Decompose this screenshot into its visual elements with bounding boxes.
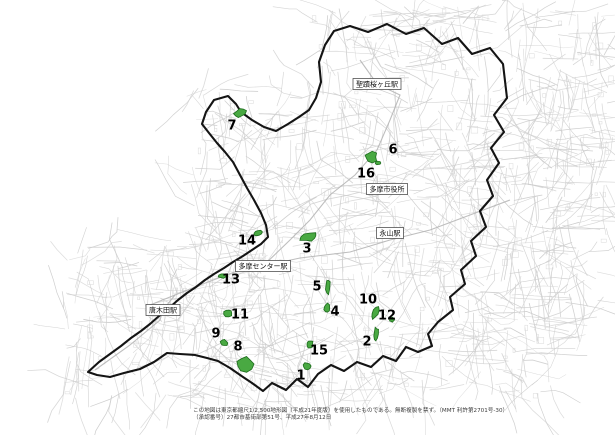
street-line bbox=[423, 371, 429, 396]
street-line bbox=[474, 95, 479, 122]
site-number-2: 2 bbox=[362, 335, 371, 350]
street-line bbox=[212, 115, 214, 130]
street-line bbox=[478, 46, 480, 71]
building-outline bbox=[338, 113, 343, 120]
street-line bbox=[604, 18, 615, 55]
street-line bbox=[234, 85, 281, 89]
street-line bbox=[105, 338, 106, 364]
street-line bbox=[446, 133, 451, 152]
street-line bbox=[335, 253, 363, 264]
street-line bbox=[410, 123, 439, 128]
street-line bbox=[483, 329, 484, 364]
building-outline bbox=[506, 254, 510, 259]
street-line bbox=[269, 75, 302, 97]
street-line bbox=[199, 68, 209, 98]
street-line bbox=[430, 229, 437, 277]
street-line bbox=[91, 395, 112, 435]
street-line bbox=[505, 2, 556, 31]
street-line bbox=[71, 352, 79, 395]
street-line bbox=[537, 393, 559, 435]
street-line bbox=[123, 344, 180, 394]
site-number-16: 16 bbox=[357, 167, 375, 182]
street-line bbox=[494, 286, 558, 295]
street-line bbox=[66, 345, 102, 356]
street-line bbox=[232, 175, 257, 176]
street-line bbox=[479, 315, 515, 325]
site-number-1: 1 bbox=[296, 369, 305, 384]
attribution-line-2: （承認番号）27都市基街部第51号、平成27年8月12日 bbox=[193, 415, 331, 422]
building-outline bbox=[313, 337, 317, 342]
street-line bbox=[402, 55, 432, 56]
street-line bbox=[544, 356, 549, 382]
street-line bbox=[78, 227, 87, 253]
site-number-5: 5 bbox=[312, 280, 321, 295]
street-line bbox=[357, 375, 383, 434]
street-line bbox=[192, 167, 216, 220]
street-line bbox=[445, 184, 446, 221]
street-line bbox=[376, 282, 390, 308]
building-outline bbox=[364, 328, 370, 331]
building-outline bbox=[441, 65, 445, 70]
street-line bbox=[34, 324, 66, 329]
street-line bbox=[196, 119, 218, 120]
street-line bbox=[466, 19, 496, 23]
street-line bbox=[336, 340, 362, 389]
street-line bbox=[430, 385, 465, 390]
street-line bbox=[416, 312, 421, 347]
street-network bbox=[27, 0, 615, 435]
place-label-text: 聖蹟桜ヶ丘駅 bbox=[356, 80, 398, 89]
site-number-4: 4 bbox=[330, 305, 339, 320]
street-line bbox=[518, 269, 524, 318]
place-label-text: 永山駅 bbox=[380, 229, 401, 238]
site-polygon-16 bbox=[375, 161, 380, 165]
site-number-15: 15 bbox=[310, 344, 328, 359]
street-line bbox=[242, 354, 270, 355]
street-line bbox=[76, 320, 93, 322]
street-line bbox=[568, 80, 580, 122]
street-line bbox=[88, 370, 90, 408]
street-line bbox=[483, 117, 543, 133]
building-outline bbox=[98, 357, 102, 360]
street-line bbox=[106, 292, 107, 332]
street-line bbox=[290, 92, 319, 98]
building-outline bbox=[448, 106, 453, 112]
street-line bbox=[600, 192, 615, 225]
street-line bbox=[389, 45, 398, 71]
street-line bbox=[321, 263, 373, 270]
street-line bbox=[487, 178, 533, 225]
building-outline bbox=[198, 148, 200, 154]
building-outline bbox=[601, 239, 606, 242]
building-outline bbox=[321, 257, 327, 264]
building-outline bbox=[420, 307, 424, 311]
street-line bbox=[352, 274, 360, 350]
site-polygon-8 bbox=[237, 357, 254, 373]
street-line bbox=[304, 391, 348, 395]
street-line bbox=[396, 257, 401, 285]
street-line bbox=[519, 24, 534, 88]
street-line bbox=[87, 247, 147, 250]
street-line bbox=[406, 130, 452, 131]
street-line bbox=[598, 155, 615, 161]
street-line bbox=[579, 135, 584, 176]
building-outline bbox=[595, 193, 598, 196]
street-line bbox=[440, 249, 481, 287]
street-line bbox=[414, 93, 417, 106]
street-line bbox=[226, 180, 278, 197]
street-line bbox=[550, 206, 592, 212]
building-outline bbox=[546, 265, 553, 269]
street-line bbox=[341, 103, 359, 162]
street-line bbox=[195, 157, 234, 170]
building-outline bbox=[355, 91, 358, 94]
street-line bbox=[506, 330, 508, 369]
street-line bbox=[90, 389, 128, 407]
street-line bbox=[561, 91, 565, 138]
street-line bbox=[249, 162, 271, 206]
street-line bbox=[346, 97, 369, 102]
street-line bbox=[153, 373, 180, 385]
street-line bbox=[180, 365, 199, 383]
street-line bbox=[488, 68, 501, 92]
street-line bbox=[514, 165, 517, 204]
street-line bbox=[220, 89, 258, 91]
street-line bbox=[383, 281, 406, 295]
street-line bbox=[375, 88, 408, 103]
street-line bbox=[111, 360, 120, 399]
building-outline bbox=[168, 252, 174, 256]
building-outline bbox=[278, 281, 280, 286]
street-line bbox=[430, 202, 432, 236]
site-number-10: 10 bbox=[359, 293, 377, 308]
building-outline bbox=[385, 348, 391, 355]
street-line bbox=[487, 231, 499, 280]
site-polygon-7 bbox=[234, 109, 247, 118]
street-line bbox=[115, 270, 147, 274]
building-outline bbox=[297, 144, 303, 150]
street-line bbox=[542, 225, 547, 252]
site-polygon-4 bbox=[324, 303, 330, 312]
street-line bbox=[323, 114, 369, 122]
street-line bbox=[75, 250, 83, 288]
street-line bbox=[534, 51, 560, 58]
street-line bbox=[303, 129, 354, 139]
street-line bbox=[608, 44, 615, 105]
street-line bbox=[434, 248, 455, 249]
street-line bbox=[329, 10, 372, 55]
street-line bbox=[523, 359, 526, 377]
street-line bbox=[440, 153, 460, 188]
street-line bbox=[390, 160, 434, 183]
street-line bbox=[526, 25, 562, 28]
street-line bbox=[439, 344, 442, 385]
site-number-7: 7 bbox=[227, 119, 236, 134]
street-line bbox=[463, 322, 490, 323]
street-line bbox=[179, 266, 197, 269]
street-line bbox=[445, 275, 447, 314]
site-number-12: 12 bbox=[378, 309, 396, 324]
street-line bbox=[397, 199, 430, 203]
street-line bbox=[307, 364, 318, 413]
street-line bbox=[514, 284, 516, 320]
street-line bbox=[354, 45, 396, 60]
building-outline bbox=[509, 164, 513, 169]
street-line bbox=[258, 295, 270, 344]
street-line bbox=[477, 0, 512, 16]
street-line bbox=[131, 281, 134, 337]
street-line bbox=[254, 226, 309, 236]
street-line bbox=[443, 239, 455, 265]
street-line bbox=[383, 248, 421, 256]
street-line bbox=[555, 4, 608, 12]
street-line bbox=[558, 107, 579, 110]
street-line bbox=[315, 176, 344, 178]
street-line bbox=[316, 92, 357, 115]
street-line bbox=[532, 250, 574, 252]
building-outline bbox=[529, 54, 534, 58]
street-line bbox=[259, 114, 292, 116]
street-line bbox=[601, 0, 615, 16]
street-line bbox=[451, 372, 481, 411]
map-page: 12345678910111213141516 聖蹟桜ヶ丘駅多摩市役所永山駅多摩… bbox=[0, 0, 615, 435]
street-line bbox=[347, 60, 352, 91]
street-line bbox=[327, 184, 373, 190]
street-line bbox=[503, 371, 527, 387]
street-line bbox=[489, 25, 523, 49]
street-line bbox=[339, 9, 347, 63]
street-line bbox=[579, 166, 597, 226]
street-line bbox=[303, 297, 310, 339]
street-line bbox=[573, 242, 598, 260]
street-line bbox=[405, 138, 433, 144]
street-line bbox=[261, 352, 296, 382]
building-outline bbox=[138, 297, 140, 300]
street-line bbox=[507, 0, 512, 58]
street-line bbox=[577, 324, 585, 351]
building-outline bbox=[427, 297, 430, 300]
street-line bbox=[219, 386, 220, 406]
street-line bbox=[498, 221, 517, 238]
street-line bbox=[181, 310, 212, 324]
street-line bbox=[521, 115, 539, 140]
street-line bbox=[359, 350, 368, 398]
street-line bbox=[546, 177, 549, 207]
street-line bbox=[273, 287, 310, 295]
site-number-9: 9 bbox=[211, 327, 220, 342]
street-line bbox=[597, 272, 615, 290]
street-line bbox=[584, 88, 595, 132]
street-line bbox=[566, 261, 587, 268]
street-line bbox=[581, 81, 584, 110]
street-line bbox=[88, 217, 118, 248]
building-outline bbox=[405, 383, 409, 387]
street-line bbox=[607, 97, 615, 103]
street-line bbox=[606, 228, 615, 275]
street-line bbox=[121, 353, 137, 385]
site-number-13: 13 bbox=[222, 273, 240, 288]
street-line bbox=[591, 221, 615, 222]
street-line bbox=[273, 7, 318, 23]
street-line bbox=[416, 100, 468, 102]
street-line bbox=[569, 294, 579, 342]
street-line bbox=[287, 363, 288, 388]
site-number-14: 14 bbox=[238, 234, 256, 249]
street-line bbox=[420, 248, 426, 289]
street-line bbox=[497, 88, 524, 103]
attribution-line-1: この地図は東京都縮尺1/2,500地形図（平成21年度版）を使用したものである。… bbox=[193, 408, 508, 415]
street-line bbox=[51, 241, 68, 260]
street-line bbox=[323, 62, 335, 76]
street-line bbox=[395, 252, 396, 283]
street-line bbox=[79, 351, 81, 391]
street-line bbox=[204, 74, 249, 95]
street-line bbox=[379, 383, 396, 394]
street-line bbox=[264, 401, 291, 402]
street-line bbox=[519, 53, 524, 101]
place-label-text: 多摩市役所 bbox=[370, 185, 405, 194]
street-line bbox=[197, 152, 208, 198]
street-line bbox=[524, 328, 528, 361]
street-line bbox=[389, 336, 420, 345]
street-line bbox=[557, 207, 591, 211]
street-line bbox=[472, 152, 476, 185]
street-line bbox=[192, 393, 225, 399]
street-line bbox=[511, 174, 530, 219]
street-line bbox=[253, 383, 261, 431]
street-line bbox=[485, 295, 491, 316]
street-line bbox=[177, 257, 214, 274]
street-line bbox=[308, 133, 312, 164]
building-outline bbox=[187, 295, 190, 298]
building-outline bbox=[606, 150, 609, 154]
street-line bbox=[399, 323, 449, 327]
street-line bbox=[501, 281, 523, 299]
street-line bbox=[166, 247, 174, 299]
site-number-11: 11 bbox=[231, 308, 249, 323]
street-line bbox=[549, 262, 562, 314]
street-line bbox=[493, 230, 548, 246]
street-line bbox=[331, 52, 395, 71]
building-outline bbox=[446, 361, 452, 367]
building-outline bbox=[371, 237, 375, 242]
street-line bbox=[117, 230, 171, 241]
street-line bbox=[140, 331, 141, 350]
building-outline bbox=[390, 167, 395, 171]
street-line bbox=[410, 383, 450, 388]
street-line bbox=[528, 75, 542, 133]
street-line bbox=[520, 45, 574, 48]
street-line bbox=[482, 292, 485, 334]
street-line bbox=[561, 166, 606, 168]
street-line bbox=[183, 181, 232, 184]
street-line bbox=[297, 394, 314, 395]
street-line bbox=[76, 398, 88, 435]
street-line bbox=[553, 325, 556, 356]
site-number-6: 6 bbox=[388, 143, 397, 158]
building-outline bbox=[139, 322, 142, 328]
street-line bbox=[211, 361, 240, 362]
building-outline bbox=[286, 222, 292, 228]
street-line bbox=[310, 22, 331, 29]
street-line bbox=[282, 275, 293, 320]
site-polygon-2 bbox=[374, 327, 379, 341]
street-line bbox=[551, 90, 562, 131]
street-line bbox=[141, 395, 166, 428]
street-line bbox=[246, 96, 252, 118]
street-line bbox=[339, 196, 341, 245]
street-line bbox=[502, 353, 524, 381]
street-line bbox=[403, 160, 428, 180]
place-label-text: 唐木田駅 bbox=[149, 306, 177, 315]
street-line bbox=[453, 212, 456, 263]
street-line bbox=[48, 265, 67, 318]
building-outline bbox=[170, 333, 174, 340]
street-line bbox=[536, 270, 549, 317]
street-line bbox=[356, 369, 368, 408]
street-line bbox=[503, 171, 537, 178]
place-label-text: 多摩センター駅 bbox=[239, 262, 288, 271]
street-line bbox=[606, 185, 615, 213]
street-line bbox=[434, 179, 469, 233]
street-line bbox=[454, 359, 505, 364]
building-outline bbox=[65, 392, 70, 394]
site-polygon-3 bbox=[300, 233, 316, 242]
street-line bbox=[543, 58, 579, 59]
street-line bbox=[150, 246, 198, 250]
street-line bbox=[469, 21, 475, 44]
street-line bbox=[499, 51, 521, 60]
site-number-3: 3 bbox=[302, 242, 311, 257]
street-line bbox=[471, 166, 505, 167]
street-line bbox=[510, 168, 521, 199]
street-line bbox=[126, 380, 130, 430]
building-outline bbox=[132, 362, 139, 364]
building-outline bbox=[224, 375, 230, 377]
street-line bbox=[599, 132, 603, 168]
street-line bbox=[233, 295, 252, 298]
street-line bbox=[502, 122, 549, 147]
street-line bbox=[496, 383, 523, 394]
site-number-8: 8 bbox=[233, 340, 242, 355]
street-line bbox=[323, 115, 328, 146]
street-line bbox=[466, 132, 511, 145]
street-line bbox=[574, 14, 578, 58]
street-line bbox=[135, 392, 160, 420]
street-line bbox=[517, 40, 521, 72]
building-outline bbox=[543, 93, 546, 97]
street-line bbox=[502, 0, 540, 19]
street-line bbox=[252, 322, 283, 352]
building-outline bbox=[289, 130, 294, 133]
street-line bbox=[322, 66, 323, 95]
street-line bbox=[326, 59, 329, 73]
street-line bbox=[124, 373, 125, 390]
street-line bbox=[334, 146, 336, 175]
building-outline bbox=[88, 281, 94, 285]
street-line bbox=[309, 368, 314, 406]
street-line bbox=[192, 328, 195, 357]
street-line bbox=[524, 360, 548, 364]
street-line bbox=[358, 99, 361, 123]
street-line bbox=[515, 348, 575, 352]
street-line bbox=[415, 271, 437, 273]
street-line bbox=[523, 275, 576, 282]
street-line bbox=[192, 96, 203, 109]
building-outline bbox=[545, 296, 552, 302]
map-canvas: 12345678910111213141516 聖蹟桜ヶ丘駅多摩市役所永山駅多摩… bbox=[0, 0, 615, 435]
street-line bbox=[589, 239, 615, 252]
